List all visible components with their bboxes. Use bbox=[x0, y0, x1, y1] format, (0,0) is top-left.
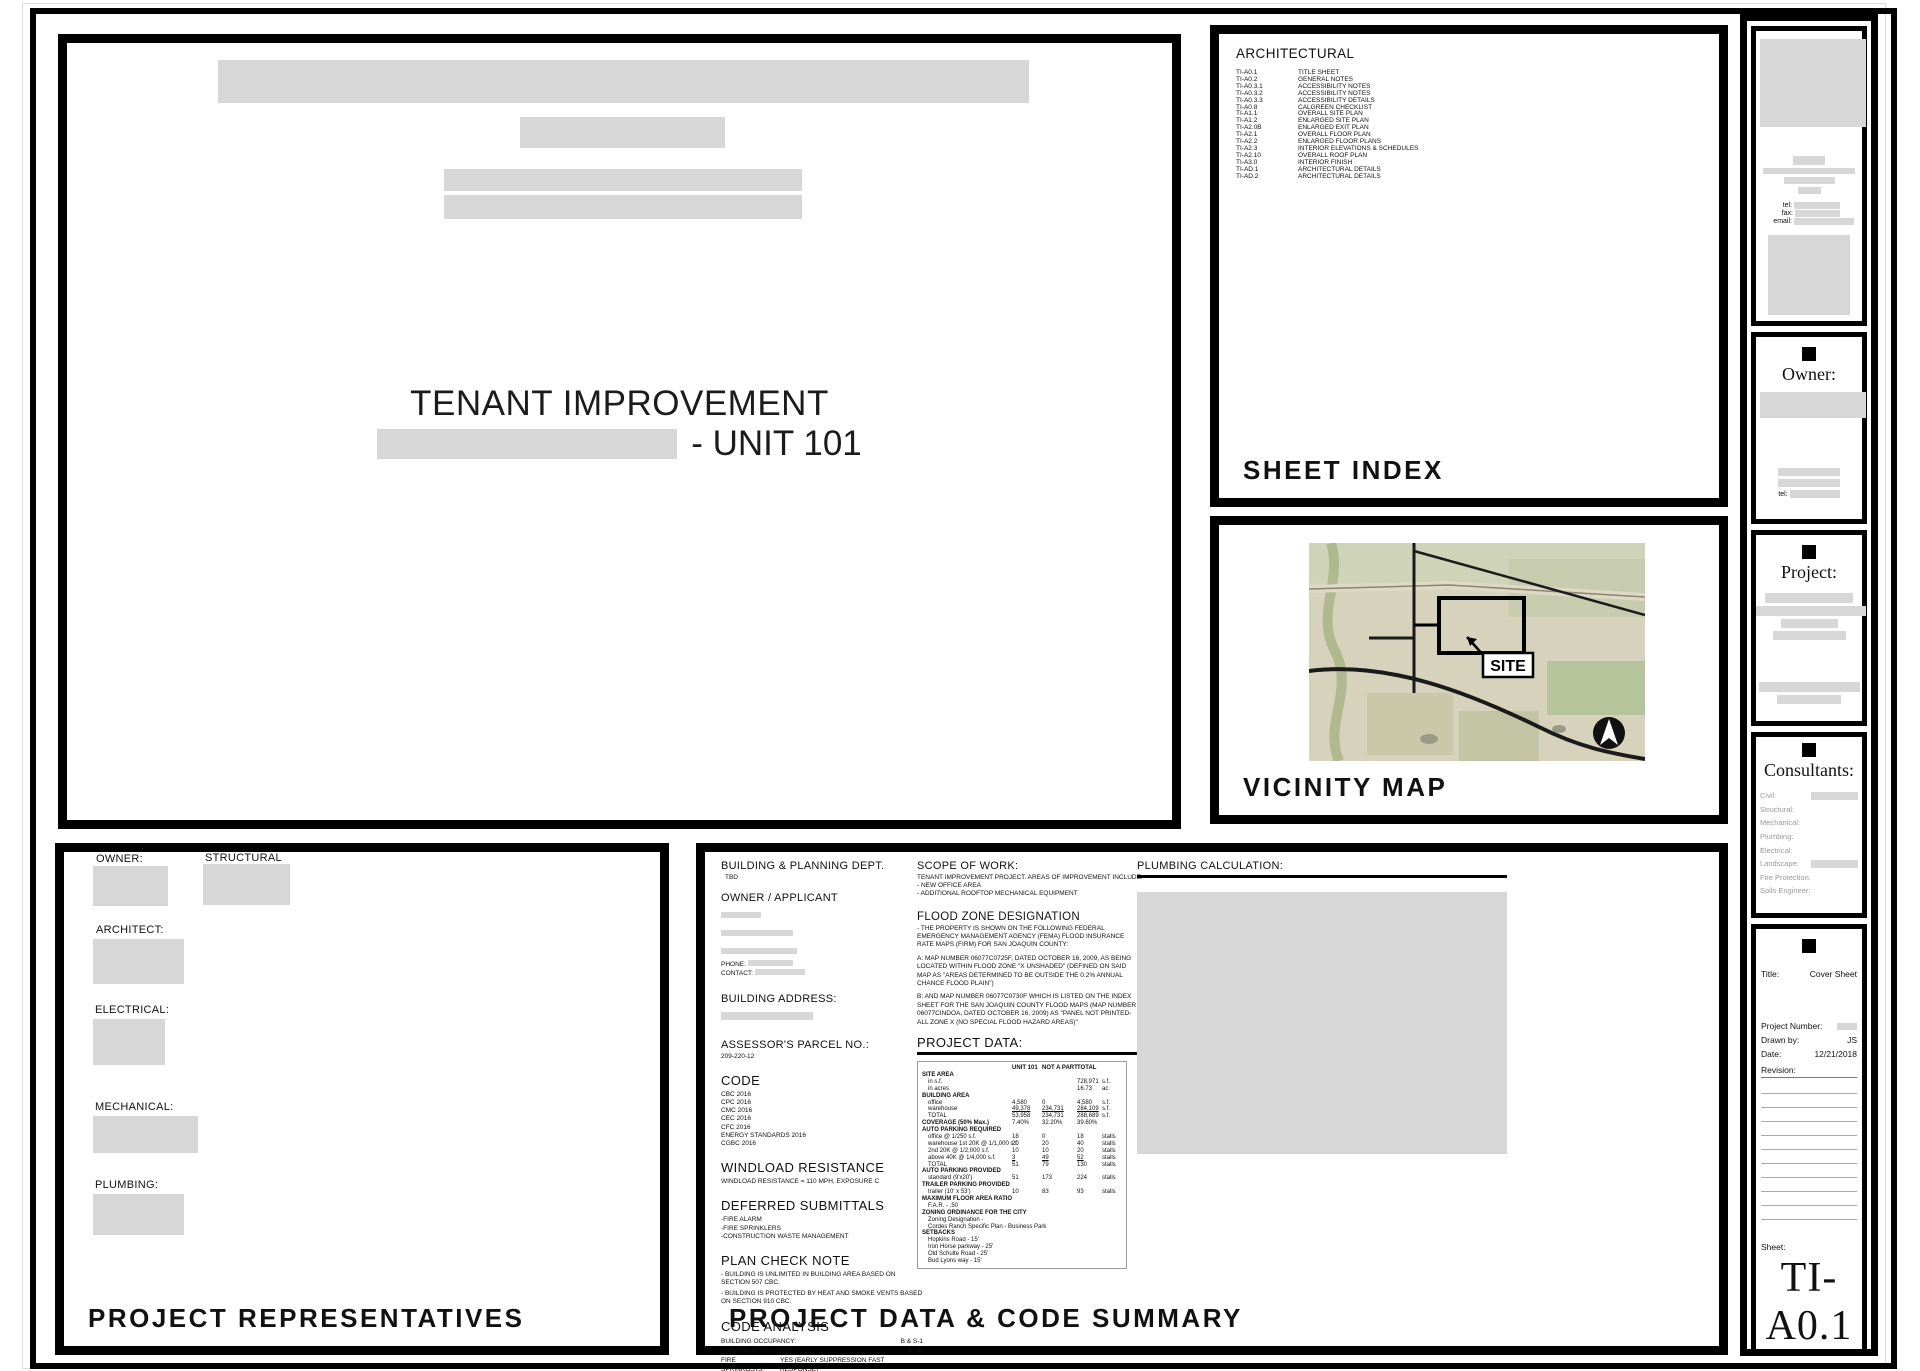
row-label: warehouse bbox=[928, 1106, 957, 1113]
representatives-title: PROJECT REPRESENTATIVES bbox=[88, 1303, 525, 1334]
table-row: 2nd 20K @ 1/2,000 s.f. 10 10 20 stalls bbox=[920, 1148, 1124, 1155]
building-dept-heading: BUILDING & PLANNING DEPT. bbox=[721, 860, 923, 872]
code-heading: CODE bbox=[721, 1073, 923, 1088]
row-notapart-value: 49 bbox=[1042, 1155, 1049, 1162]
table-row: F.A.R. - .50 bbox=[920, 1203, 1124, 1210]
table-row: standard (9'x20') 51 173 224 stalls bbox=[920, 1175, 1124, 1182]
deferred-list: -FIRE ALARM-FIRE SPRINKLERS-CONSTRUCTION… bbox=[721, 1216, 923, 1241]
map-field-3 bbox=[1547, 661, 1645, 715]
row-total-value: 728,971 bbox=[1077, 1079, 1099, 1086]
consultant-row: Mechanical: bbox=[1756, 816, 1862, 830]
table-row: Bud Lyons way - 15' bbox=[920, 1258, 1124, 1265]
row-label: Zoning Designation - bbox=[928, 1217, 983, 1224]
representatives-panel: OWNER: STRUCTURAL ARCHITECT: ELECTRICAL:… bbox=[55, 843, 669, 1355]
table-row: Zoning Designation - bbox=[920, 1217, 1124, 1224]
row-label: F.A.R. - .50 bbox=[928, 1203, 958, 1210]
row-label: Hopkins Road - 15' bbox=[928, 1237, 979, 1244]
sheet-list-row: TI-AD.2 ARCHITECTURAL DETAILS bbox=[1236, 174, 1418, 181]
project-data-header-row: UNIT 101 NOT A PART TOTAL bbox=[920, 1065, 1124, 1072]
row-unit101-value: 49,378 bbox=[1012, 1106, 1030, 1113]
row-total-value: 16.73 bbox=[1077, 1086, 1092, 1093]
redacted-owner-line-1 bbox=[1778, 468, 1840, 476]
row-label: trailer (10' x 53') bbox=[928, 1189, 971, 1196]
code-analysis-label: BUILDING OCCUPANCY: bbox=[721, 1337, 796, 1347]
row-label: warehouse 1st 20K @ 1/1,000 s.f. bbox=[928, 1141, 1018, 1148]
firm-contact-block: tel: fax: email: bbox=[1756, 202, 1862, 225]
redacted-firm-line-2 bbox=[1763, 168, 1855, 174]
date-value: 12/21/2018 bbox=[1814, 1049, 1857, 1059]
project-number-row: Project Number: bbox=[1756, 1021, 1862, 1031]
consultants-heading: Consultants: bbox=[1756, 760, 1862, 781]
row-label: Old Schulte Road - 25' bbox=[928, 1251, 988, 1258]
row-unit101-value: 3 bbox=[1012, 1155, 1015, 1162]
redacted-firm-line-4 bbox=[1798, 187, 1821, 194]
redacted-contact bbox=[755, 969, 805, 975]
row-notapart-value: 0 bbox=[1042, 1100, 1045, 1107]
flood-paragraph: B: AND MAP NUMBER 06077C0730F WHICH IS L… bbox=[917, 993, 1139, 1027]
project-data-panel: BUILDING & PLANNING DEPT. TBD OWNER / AP… bbox=[696, 843, 1728, 1355]
row-notapart-value: 83 bbox=[1042, 1189, 1049, 1196]
project-data-table: UNIT 101 NOT A PART TOTAL SITE AREA bbox=[917, 1061, 1127, 1269]
map-pond-1 bbox=[1420, 734, 1438, 744]
redacted-mechanical-info bbox=[93, 1116, 198, 1153]
phone-row: PHONE: bbox=[721, 960, 923, 969]
plumbing-label: PLUMBING: bbox=[95, 1179, 158, 1191]
row-total-value: 52 bbox=[1077, 1155, 1084, 1162]
consultant-row: Soils Engineer: bbox=[1756, 884, 1862, 898]
site-label: SITE bbox=[1490, 658, 1526, 675]
consultant-label: Plumbing: bbox=[1760, 832, 1793, 841]
data-column-3: PLUMBING CALCULATION: bbox=[1137, 860, 1507, 1159]
row-total-value: 39.60% bbox=[1077, 1120, 1097, 1127]
consultant-label: Structural: bbox=[1760, 805, 1794, 814]
row-total-value: 288,689 bbox=[1077, 1113, 1099, 1120]
sheet-label-row: Sheet: bbox=[1756, 1242, 1862, 1252]
row-total-value: 4,580 bbox=[1077, 1100, 1092, 1107]
project-heading: Project: bbox=[1756, 562, 1862, 583]
row-unit: stalls bbox=[1102, 1134, 1116, 1141]
revision-row: Revision: bbox=[1761, 1065, 1857, 1078]
redacted-architect-info bbox=[93, 939, 184, 984]
deferred-item: -FIRE ALARM bbox=[721, 1216, 923, 1224]
consultant-row: Plumbing: bbox=[1756, 830, 1862, 844]
consultants-box: Consultants: Civil: Structural: Mechanic… bbox=[1751, 732, 1867, 918]
north-arrow-icon: N bbox=[1593, 717, 1625, 749]
table-row: above 40K @ 1/4,000 s.f. 3 49 52 stalls bbox=[920, 1155, 1124, 1162]
flood-paragraphs: - THE PROPERTY IS SHOWN ON THE FOLLOWING… bbox=[917, 925, 1139, 1027]
flood-paragraph: - THE PROPERTY IS SHOWN ON THE FOLLOWING… bbox=[917, 925, 1139, 950]
redacted-owner-line-2 bbox=[1778, 479, 1840, 487]
redacted-building-name-bar bbox=[377, 429, 677, 459]
row-unit: stalls bbox=[1102, 1162, 1116, 1169]
row-notapart-value: 10 bbox=[1042, 1148, 1049, 1155]
firm-fax-row: fax: bbox=[1756, 210, 1862, 217]
firm-tel-row: tel: bbox=[1756, 202, 1862, 209]
row-total-value: 20 bbox=[1077, 1148, 1084, 1155]
project-number-label: Project Number: bbox=[1761, 1021, 1822, 1031]
row-label: office bbox=[928, 1100, 942, 1107]
redacted-firm-line-3 bbox=[1784, 177, 1835, 184]
cover-subtitle-row: - UNIT 101 bbox=[67, 424, 1172, 464]
row-total-value: 130 bbox=[1077, 1162, 1087, 1169]
consultant-row: Electrical: bbox=[1756, 843, 1862, 857]
map-field-4 bbox=[1367, 693, 1453, 755]
table-row: SETBACKS bbox=[920, 1230, 1124, 1237]
row-total-value: 93 bbox=[1077, 1189, 1084, 1196]
row-label: MAXIMUM FLOOR AREA RATIO bbox=[922, 1196, 1012, 1203]
code-analysis-value: III - B bbox=[907, 1346, 923, 1356]
date-row: Date: 12/21/2018 bbox=[1756, 1049, 1862, 1059]
plan-check-item: - BUILDING IS UNLIMITED IN BUILDING AREA… bbox=[721, 1271, 923, 1288]
redacted-email bbox=[1794, 218, 1854, 225]
row-label: Cordes Ranch Specific Plan - Business Pa… bbox=[928, 1224, 1046, 1231]
scope-lines: TENANT IMPROVEMENT PROJECT. AREAS OF IMP… bbox=[917, 874, 1139, 899]
row-label: standard (9'x20') bbox=[928, 1175, 972, 1182]
row-label: TRAILER PARKING PROVIDED bbox=[922, 1182, 1010, 1189]
sheet-number-value: TI-A0.1 bbox=[1756, 1254, 1862, 1350]
data-column-2: SCOPE OF WORK: TENANT IMPROVEMENT PROJEC… bbox=[917, 860, 1139, 1269]
consultant-label: Civil: bbox=[1760, 791, 1776, 800]
row-unit: stalls bbox=[1102, 1148, 1116, 1155]
sheet-name: ARCHITECTURAL DETAILS bbox=[1298, 174, 1381, 181]
vicinity-map-title: VICINITY MAP bbox=[1243, 772, 1447, 803]
sheet-info-box: Title: Cover Sheet Project Number: Drawn… bbox=[1751, 924, 1867, 1355]
vicinity-map-panel: SITE N VICINITY MAP bbox=[1210, 516, 1728, 824]
redacted-owner-tel bbox=[1790, 490, 1840, 498]
consultant-row: Civil: bbox=[1756, 789, 1862, 803]
cover-panel: TENANT IMPROVEMENT - UNIT 101 bbox=[58, 34, 1181, 829]
building-dept-value: TBD bbox=[721, 874, 923, 882]
revision-label: Revision: bbox=[1761, 1065, 1796, 1075]
redacted-project-line-3 bbox=[1781, 619, 1838, 628]
redacted-building-address bbox=[721, 1012, 813, 1020]
north-label: N bbox=[1606, 725, 1613, 735]
owner-tel-label: tel: bbox=[1778, 491, 1787, 498]
redacted-project-line-1 bbox=[1765, 593, 1853, 603]
sheet-label: Sheet: bbox=[1761, 1242, 1786, 1252]
redacted-electrical-info bbox=[93, 1019, 165, 1065]
vicinity-map-svg: SITE N bbox=[1309, 543, 1645, 761]
row-label: Bud Lyons way - 15' bbox=[928, 1258, 982, 1265]
date-label: Date: bbox=[1761, 1049, 1781, 1059]
table-row: Iron Horse parkway - 25' bbox=[920, 1244, 1124, 1251]
code-analysis-label: CONSTRUCTION TYPE: bbox=[721, 1346, 794, 1356]
table-row: in s.f. 728,971 s.f. bbox=[920, 1079, 1124, 1086]
table-row: warehouse 1st 20K @ 1/1,000 s.f. 20 20 4… bbox=[920, 1141, 1124, 1148]
table-row: TOTAL 51 79 130 stalls bbox=[920, 1162, 1124, 1169]
scope-line: - ADDITIONAL ROOFTOP MECHANICAL EQUIPMEN… bbox=[917, 890, 1139, 898]
owner-address-block: tel: bbox=[1756, 468, 1862, 498]
redacted-fax bbox=[1795, 210, 1840, 217]
plan-check-heading: PLAN CHECK NOTE bbox=[721, 1253, 923, 1268]
redacted-owner-info bbox=[93, 866, 168, 906]
firm-address-block bbox=[1756, 156, 1862, 194]
title-block-sidebar: tel: fax: email: Owner: bbox=[1740, 14, 1878, 1356]
scope-line: - NEW OFFICE AREA bbox=[917, 882, 1139, 890]
row-label: above 40K @ 1/4,000 s.f. bbox=[928, 1155, 996, 1162]
redacted-stamp bbox=[1768, 235, 1850, 315]
code-analysis-row: FIRE SPRINKLERS: YES (EARLY SUPPRESSION … bbox=[721, 1356, 923, 1371]
code-list: CBC 2016CPC 2016CMC 2016CEC 2016CFC 2016… bbox=[721, 1091, 923, 1148]
consultant-row: Fire Protection: bbox=[1756, 871, 1862, 885]
code-analysis-row: CONSTRUCTION TYPE: III - B bbox=[721, 1346, 923, 1356]
code-item: CPC 2016 bbox=[721, 1099, 923, 1107]
owner-heading: Owner: bbox=[1756, 364, 1862, 385]
row-label: AUTO PARKING REQUIRED bbox=[922, 1127, 1001, 1134]
row-label: TOTAL bbox=[928, 1113, 947, 1120]
section-square-icon bbox=[1802, 545, 1816, 559]
cover-title: TENANT IMPROVEMENT bbox=[67, 384, 1172, 424]
architect-label: ARCHITECT: bbox=[96, 924, 164, 936]
row-unit: s.f. bbox=[1102, 1113, 1110, 1120]
row-label: BUILDING AREA bbox=[922, 1093, 969, 1100]
code-analysis-value: YES (EARLY SUPPRESSION FAST RESPONSE) bbox=[780, 1356, 923, 1371]
title-sheet-page: TENANT IMPROVEMENT - UNIT 101 ARCHITECTU… bbox=[0, 0, 1920, 1371]
owner-tel-row: tel: bbox=[1756, 490, 1862, 498]
row-notapart-value: 173 bbox=[1042, 1175, 1052, 1182]
row-label: office @ 1/250 s.f. bbox=[928, 1134, 976, 1141]
row-label: 2nd 20K @ 1/2,000 s.f. bbox=[928, 1148, 989, 1155]
tel-label: tel: bbox=[1783, 202, 1792, 209]
mechanical-label: MECHANICAL: bbox=[95, 1101, 173, 1113]
sheet-list: TI-A0.1 TITLE SHEET TI-A0.2 GENERAL NOTE… bbox=[1236, 70, 1418, 181]
project-data-rows: SITE AREA in s.f. 728,971 s.f. bbox=[920, 1072, 1124, 1265]
deferred-heading: DEFERRED SUBMITTALS bbox=[721, 1198, 923, 1213]
row-unit101-value: 53,958 bbox=[1012, 1113, 1030, 1120]
row-total-value: 284,109 bbox=[1077, 1106, 1099, 1113]
row-unit101-value: 7.40% bbox=[1012, 1120, 1029, 1127]
table-row: TOTAL 53,958 234,731 288,689 s.f. bbox=[920, 1113, 1124, 1120]
deferred-item: -CONSTRUCTION WASTE MANAGEMENT bbox=[721, 1233, 923, 1241]
section-square-icon bbox=[1802, 939, 1816, 953]
redacted-firm-logo bbox=[1760, 39, 1866, 127]
row-notapart-value: 20 bbox=[1042, 1141, 1049, 1148]
map-pond-2 bbox=[1552, 725, 1566, 733]
redacted-plumbing-info bbox=[93, 1194, 184, 1235]
sheet-number: TI-AD.2 bbox=[1236, 174, 1298, 181]
code-analysis-value: B & S-1 bbox=[901, 1337, 923, 1347]
row-unit: s.f. bbox=[1102, 1100, 1110, 1107]
title-label: Title: bbox=[1761, 969, 1779, 979]
row-unit: s.f. bbox=[1102, 1106, 1110, 1113]
section-square-icon bbox=[1802, 347, 1816, 361]
table-row: Old Schulte Road - 25' bbox=[920, 1251, 1124, 1258]
row-unit101-value: 20 bbox=[1012, 1141, 1019, 1148]
redacted-consultant-value bbox=[1811, 860, 1858, 868]
phone-label: PHONE: bbox=[721, 961, 746, 968]
row-notapart-value: 234,731 bbox=[1042, 1106, 1064, 1113]
electrical-label: ELECTRICAL: bbox=[95, 1004, 169, 1016]
windload-heading: WINDLOAD RESISTANCE bbox=[721, 1160, 923, 1175]
table-row: SITE AREA bbox=[920, 1072, 1124, 1079]
table-row: COVERAGE (50% Max.) 7.40% 32.20% 39.60% bbox=[920, 1120, 1124, 1127]
code-item: ENERGY STANDARDS 2016 bbox=[721, 1132, 923, 1140]
redacted-consultant-value bbox=[1811, 792, 1858, 800]
table-row: MAXIMUM FLOOR AREA RATIO bbox=[920, 1196, 1124, 1203]
title-value: Cover Sheet bbox=[1810, 969, 1857, 979]
table-row: office @ 1/250 s.f. 18 0 18 stalls bbox=[920, 1134, 1124, 1141]
table-row: in acres 16.73 ac bbox=[920, 1086, 1124, 1093]
row-label: COVERAGE (50% Max.) bbox=[922, 1120, 989, 1127]
table-row: AUTO PARKING PROVIDED bbox=[920, 1168, 1124, 1175]
project-name-block bbox=[1756, 593, 1862, 640]
section-square-icon bbox=[1802, 743, 1816, 757]
firm-info-box: tel: fax: email: bbox=[1751, 26, 1867, 326]
firm-email-row: email: bbox=[1756, 218, 1862, 225]
cover-unit-suffix: - UNIT 101 bbox=[691, 424, 862, 464]
scope-heading: SCOPE OF WORK: bbox=[917, 860, 1139, 872]
row-unit: ac bbox=[1102, 1086, 1108, 1093]
table-row: ZONING ORDINANCE FOR THE CITY bbox=[920, 1210, 1124, 1217]
row-label: Iron Horse parkway - 25' bbox=[928, 1244, 993, 1251]
table-row: Cordes Ranch Specific Plan - Business Pa… bbox=[920, 1224, 1124, 1231]
flood-heading: FLOOD ZONE DESIGNATION bbox=[917, 911, 1139, 923]
windload-body: WINDLOAD RESISTANCE = 110 MPH, EXPOSURE … bbox=[721, 1178, 923, 1186]
code-analysis-rows: BUILDING OCCUPANCY: B & S-1 CONSTRUCTION… bbox=[721, 1337, 923, 1371]
deferred-item: -FIRE SPRINKLERS bbox=[721, 1225, 923, 1233]
title-row: Title: Cover Sheet bbox=[1756, 969, 1862, 979]
row-notapart-value: 32.20% bbox=[1042, 1120, 1062, 1127]
apn-value: 209-220-12 bbox=[721, 1053, 923, 1061]
project-box: Project: bbox=[1751, 530, 1867, 726]
redacted-plumbing-calculation bbox=[1137, 892, 1507, 1154]
redacted-applicant-line-1 bbox=[721, 912, 761, 918]
row-total-value: 40 bbox=[1077, 1141, 1084, 1148]
code-item: CGBC 2016 bbox=[721, 1140, 923, 1148]
email-label: email: bbox=[1773, 218, 1792, 225]
redacted-project-line-2 bbox=[1756, 606, 1866, 616]
row-total-value: 224 bbox=[1077, 1175, 1087, 1182]
redacted-applicant-line-3 bbox=[721, 948, 797, 954]
redacted-firm-line-1 bbox=[1793, 156, 1825, 165]
redacted-subtitle-bar bbox=[520, 117, 725, 148]
table-row: trailer (10' x 53') 10 83 93 stalls bbox=[920, 1189, 1124, 1196]
row-unit: stalls bbox=[1102, 1141, 1116, 1148]
redacted-applicant-line-2 bbox=[721, 930, 793, 936]
row-notapart-value: 234,731 bbox=[1042, 1113, 1064, 1120]
redacted-address-bar-1 bbox=[444, 169, 802, 191]
project-data-underline bbox=[917, 1052, 1139, 1055]
row-unit101-value: 4,580 bbox=[1012, 1100, 1027, 1107]
contact-row: CONTACT: bbox=[721, 969, 923, 978]
row-total-value: 18 bbox=[1077, 1134, 1084, 1141]
project-address-block bbox=[1756, 682, 1862, 704]
flood-paragraph: A: MAP NUMBER 06077C0725F, DATED OCTOBER… bbox=[917, 955, 1139, 989]
revision-lines bbox=[1761, 1080, 1857, 1232]
contact-label: CONTACT: bbox=[721, 970, 753, 977]
consultant-row: Structural: bbox=[1756, 803, 1862, 817]
row-unit101-value: 18 bbox=[1012, 1134, 1019, 1141]
owner-box: Owner: tel: bbox=[1751, 332, 1867, 524]
consultants-list: Civil: Structural: Mechanical: P bbox=[1756, 789, 1862, 898]
drawn-by-value: JS bbox=[1847, 1035, 1857, 1045]
row-label: SITE AREA bbox=[922, 1072, 954, 1079]
table-row: TRAILER PARKING PROVIDED bbox=[920, 1182, 1124, 1189]
col-header-notapart: NOT A PART bbox=[1042, 1065, 1078, 1072]
redacted-phone bbox=[748, 960, 793, 966]
row-label: in s.f. bbox=[928, 1079, 942, 1086]
plumbing-calc-underline bbox=[1137, 875, 1507, 878]
consultant-label: Landscape: bbox=[1760, 859, 1799, 868]
redacted-owner-name bbox=[1760, 392, 1866, 418]
row-unit: stalls bbox=[1102, 1189, 1116, 1196]
consultant-label: Electrical: bbox=[1760, 846, 1793, 855]
table-row: BUILDING AREA bbox=[920, 1093, 1124, 1100]
redacted-project-line-4 bbox=[1773, 631, 1846, 640]
data-column-1: BUILDING & PLANNING DEPT. TBD OWNER / AP… bbox=[721, 860, 923, 1371]
row-label: ZONING ORDINANCE FOR THE CITY bbox=[922, 1210, 1027, 1217]
code-item: CEC 2016 bbox=[721, 1115, 923, 1123]
row-unit101-value: 51 bbox=[1012, 1162, 1019, 1169]
table-row: AUTO PARKING REQUIRED bbox=[920, 1127, 1124, 1134]
building-address-heading: BUILDING ADDRESS: bbox=[721, 993, 923, 1005]
row-label: AUTO PARKING PROVIDED bbox=[922, 1168, 1001, 1175]
discipline-heading: ARCHITECTURAL bbox=[1236, 46, 1354, 61]
owner-label: OWNER: bbox=[96, 853, 143, 865]
redacted-address-bar-2 bbox=[444, 195, 802, 219]
row-unit101-value: 10 bbox=[1012, 1189, 1019, 1196]
table-row: office 4,580 0 4,580 s.f. bbox=[920, 1100, 1124, 1107]
table-row: Hopkins Road - 15' bbox=[920, 1237, 1124, 1244]
sheet-index-title: SHEET INDEX bbox=[1243, 455, 1444, 486]
plan-check-list: - BUILDING IS UNLIMITED IN BUILDING AREA… bbox=[721, 1271, 923, 1307]
redacted-project-line-5 bbox=[1759, 682, 1860, 692]
consultant-label: Mechanical: bbox=[1760, 818, 1800, 827]
redacted-project-name-bar bbox=[218, 60, 1029, 103]
row-unit: stalls bbox=[1102, 1175, 1116, 1182]
apn-heading: ASSESSOR'S PARCEL NO.: bbox=[721, 1039, 923, 1051]
consultant-label: Fire Protection: bbox=[1760, 873, 1811, 882]
drawn-by-label: Drawn by: bbox=[1761, 1035, 1799, 1045]
row-unit: s.f. bbox=[1102, 1079, 1110, 1086]
row-unit: stalls bbox=[1102, 1155, 1116, 1162]
row-label: TOTAL bbox=[928, 1162, 947, 1169]
code-item: CBC 2016 bbox=[721, 1091, 923, 1099]
structural-label: STRUCTURAL bbox=[205, 852, 282, 864]
table-row: warehouse 49,378 234,731 284,109 s.f. bbox=[920, 1106, 1124, 1113]
drawn-by-row: Drawn by: JS bbox=[1756, 1035, 1862, 1045]
row-notapart-value: 0 bbox=[1042, 1134, 1045, 1141]
plumbing-calc-heading: PLUMBING CALCULATION: bbox=[1137, 860, 1507, 872]
code-item: CMC 2016 bbox=[721, 1107, 923, 1115]
row-unit101-value: 51 bbox=[1012, 1175, 1019, 1182]
code-analysis-label: FIRE SPRINKLERS: bbox=[721, 1356, 780, 1371]
redacted-project-number bbox=[1837, 1023, 1857, 1030]
owner-applicant-heading: OWNER / APPLICANT bbox=[721, 892, 923, 904]
scope-line: TENANT IMPROVEMENT PROJECT. AREAS OF IMP… bbox=[917, 874, 1139, 882]
vicinity-map-image: SITE N bbox=[1309, 543, 1645, 761]
row-notapart-value: 79 bbox=[1042, 1162, 1049, 1169]
sheet-index-panel: ARCHITECTURAL TI-A0.1 TITLE SHEET TI-A0.… bbox=[1210, 25, 1728, 507]
code-item: CFC 2016 bbox=[721, 1124, 923, 1132]
project-data-heading: PROJECT DATA: bbox=[917, 1035, 1139, 1050]
redacted-tel bbox=[1794, 202, 1840, 209]
col-header-unit101: UNIT 101 bbox=[1012, 1065, 1038, 1072]
code-analysis-row: BUILDING OCCUPANCY: B & S-1 bbox=[721, 1337, 923, 1347]
fax-label: fax: bbox=[1782, 210, 1793, 217]
consultant-label: Soils Engineer: bbox=[1760, 886, 1810, 895]
project-data-title: PROJECT DATA & CODE SUMMARY bbox=[729, 1303, 1243, 1334]
row-label: SETBACKS bbox=[922, 1230, 955, 1237]
redacted-project-line-6 bbox=[1777, 695, 1841, 704]
redacted-structural-info bbox=[203, 864, 290, 905]
col-header-total: TOTAL bbox=[1077, 1065, 1096, 1072]
consultant-row: Landscape: bbox=[1756, 857, 1862, 871]
row-label: in acres bbox=[928, 1086, 949, 1093]
map-field-5 bbox=[1459, 711, 1539, 761]
row-unit101-value: 10 bbox=[1012, 1148, 1019, 1155]
